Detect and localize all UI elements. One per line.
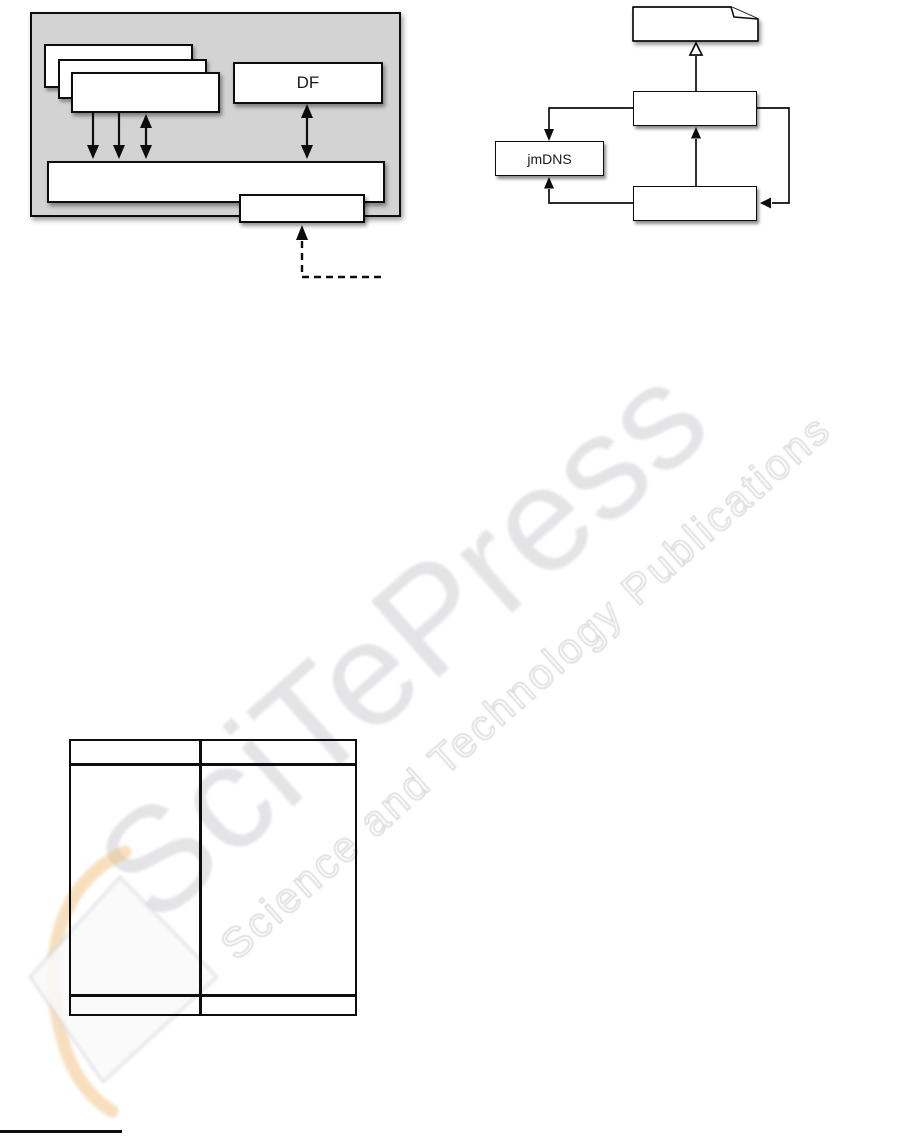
results-table (69, 739, 357, 1016)
bottom-component-box (633, 186, 757, 221)
connector-box (239, 194, 365, 223)
table-body-cell-right (201, 765, 355, 994)
table-footer-cell-left (71, 996, 199, 1014)
dashed-arrow-line (302, 241, 381, 277)
bottom-to-jmdns-line (549, 189, 634, 203)
bottom-to-jmdns-head-icon (544, 177, 554, 189)
paper-page: SciTePress Science and Technology Public… (0, 0, 915, 1137)
middle-to-bottom-head-icon (760, 198, 771, 209)
dashed-arrow-head-icon (296, 225, 308, 240)
df-box: DF (233, 62, 383, 104)
middle-to-bottom-line (757, 108, 789, 203)
footnote-rule (0, 1130, 122, 1133)
agent-box-front (71, 72, 220, 113)
jmdns-box: jmDNS (495, 141, 604, 176)
note-box (626, 1, 766, 51)
table-footer-cell-right (201, 996, 355, 1014)
bottom-to-middle-head-icon (691, 127, 701, 139)
middle-to-jmdns-line (549, 108, 634, 129)
jmdns-box-label: jmDNS (527, 151, 571, 167)
table-header-cell-left (71, 741, 199, 763)
figure-platform-container: DF (30, 12, 401, 217)
df-box-label: DF (297, 73, 320, 93)
middle-component-box (633, 91, 757, 126)
table-header-cell-right (201, 741, 355, 763)
table-body-cell-left (71, 765, 199, 994)
middle-to-jmdns-head-icon (544, 129, 554, 141)
